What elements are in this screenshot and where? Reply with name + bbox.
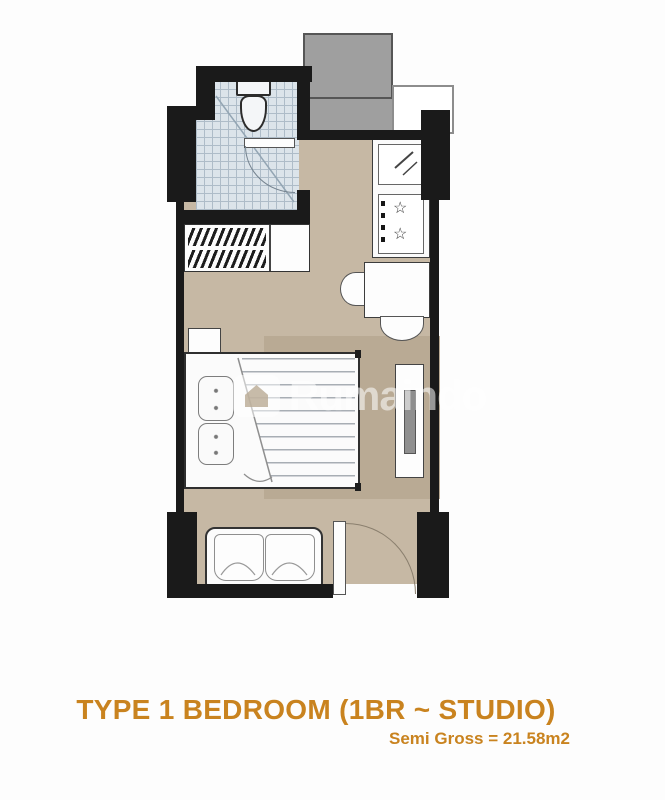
floorplan-page: ☆ ☆ — [0, 0, 665, 800]
wardrobe-divider — [269, 225, 271, 271]
wall-segment — [196, 66, 215, 120]
entrance-door-leaf — [333, 521, 346, 595]
toilet-tank — [236, 80, 271, 96]
wardrobe-hanging-clothes-icon — [188, 250, 266, 268]
double-bed — [184, 352, 360, 489]
plan-area-label: Semi Gross = 21.58m2 — [60, 729, 572, 749]
wall-segment — [204, 66, 312, 82]
wall-segment — [430, 196, 439, 516]
bed-post — [355, 350, 361, 358]
wall-segment — [297, 76, 310, 140]
burner-icon: ☆ — [393, 227, 423, 243]
wall-column — [421, 110, 450, 200]
bed-post — [355, 483, 361, 491]
wall-segment — [176, 210, 310, 224]
dining-chair — [340, 272, 366, 306]
stove: ☆ ☆ — [378, 194, 424, 254]
stove-knobs — [381, 201, 385, 247]
kitchen-sink — [378, 144, 424, 185]
plan-title: TYPE 1 BEDROOM (1BR ~ STUDIO) — [60, 694, 572, 726]
wall-segment — [167, 584, 333, 598]
caption-block: TYPE 1 BEDROOM (1BR ~ STUDIO) Semi Gross… — [60, 694, 572, 749]
dining-table — [364, 262, 430, 318]
nightstand — [188, 328, 221, 355]
wardrobe — [184, 224, 310, 272]
pillow — [198, 376, 234, 421]
burner-icon: ☆ — [393, 201, 423, 217]
tv-cabinet — [395, 364, 424, 478]
wardrobe-hanging-clothes-icon — [188, 228, 266, 246]
wall-column — [417, 512, 449, 598]
pillow — [198, 423, 234, 465]
wall-segment — [303, 130, 430, 140]
wall-column — [167, 106, 196, 202]
faucet-icon — [379, 145, 423, 184]
wall-segment — [176, 198, 184, 528]
tv — [404, 390, 416, 454]
